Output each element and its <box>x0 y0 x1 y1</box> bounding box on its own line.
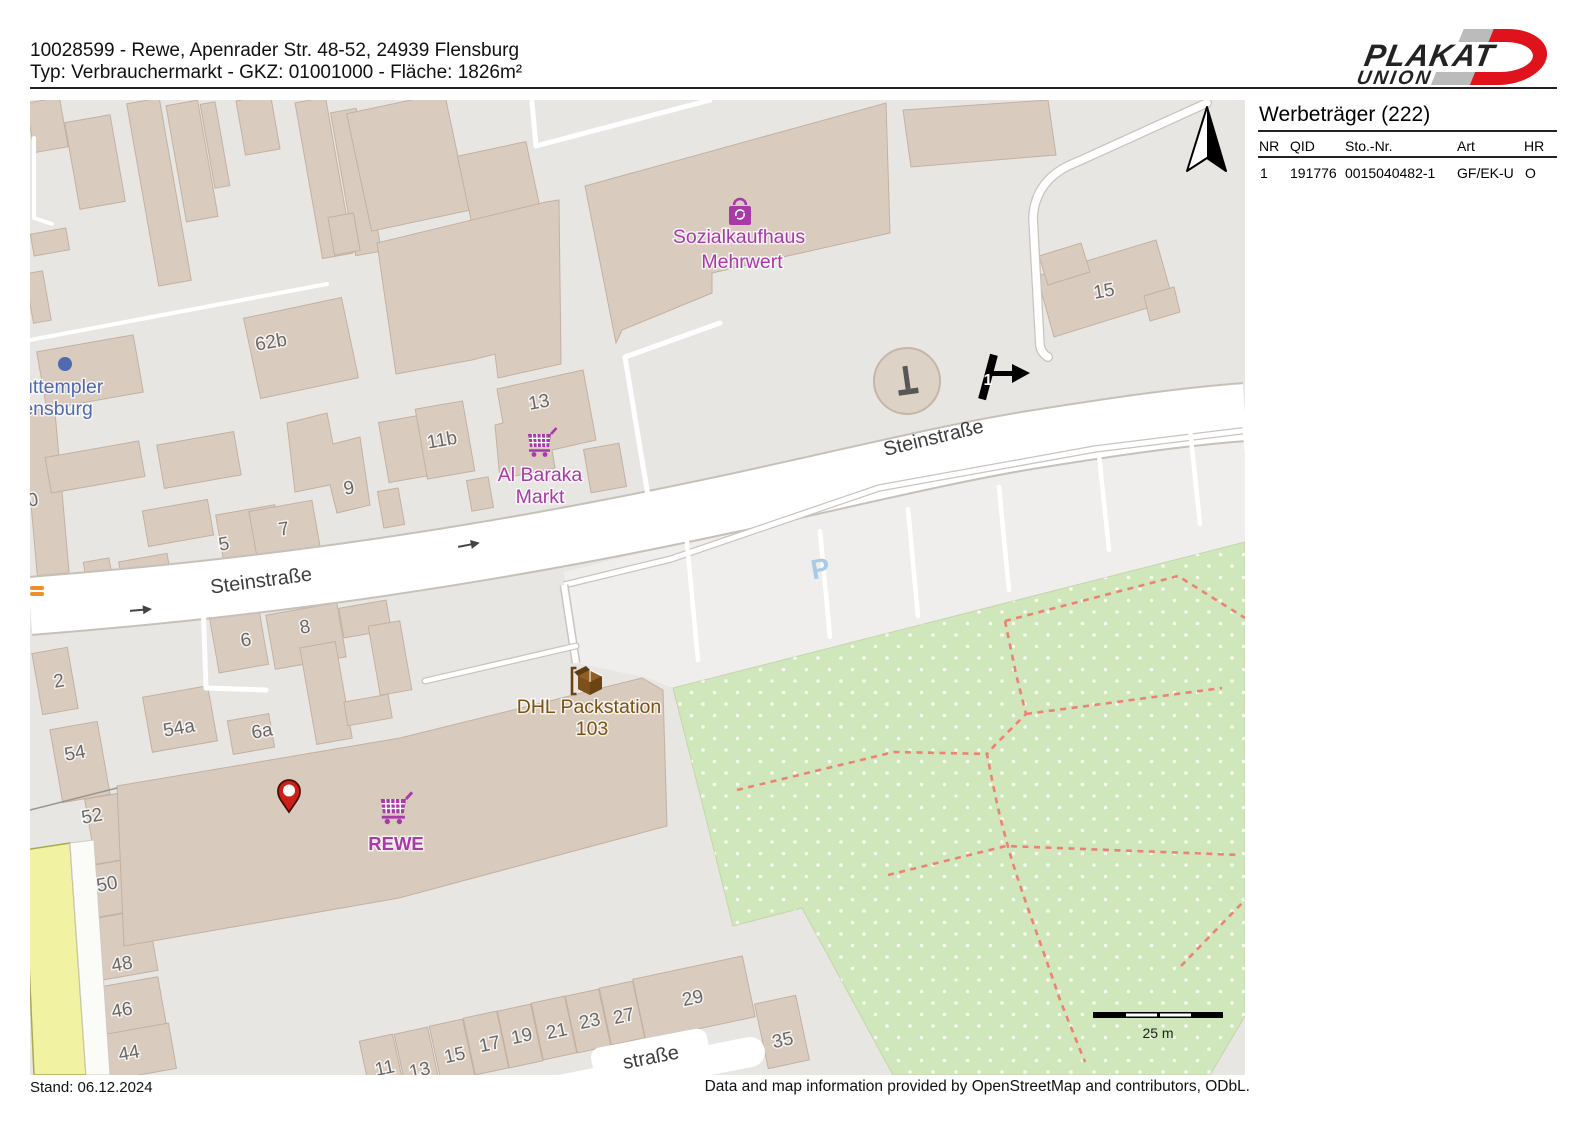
svg-text:DHL Packstation: DHL Packstation <box>517 696 662 718</box>
svg-text:Mehrwert: Mehrwert <box>701 251 783 273</box>
svg-text:35: 35 <box>770 1028 795 1053</box>
svg-text:1: 1 <box>984 372 993 389</box>
svg-text:Markt: Markt <box>516 486 565 508</box>
svg-text:50: 50 <box>95 872 119 896</box>
svg-text:Sozialkaufhaus: Sozialkaufhaus <box>673 226 806 248</box>
svg-text:25 m: 25 m <box>1142 1025 1173 1041</box>
svg-text:54: 54 <box>63 741 88 765</box>
svg-text:uttempler: uttempler <box>30 376 104 398</box>
svg-text:13: 13 <box>527 390 551 414</box>
svg-text:48: 48 <box>110 952 134 976</box>
svg-text:46: 46 <box>110 998 134 1022</box>
svg-text:103: 103 <box>576 718 609 740</box>
svg-text:19: 19 <box>509 1024 534 1049</box>
svg-text:UNION: UNION <box>1355 67 1434 86</box>
svg-text:6a: 6a <box>250 719 275 743</box>
svg-text:23: 23 <box>577 1009 602 1034</box>
svg-text:15: 15 <box>1092 279 1116 303</box>
svg-text:44: 44 <box>117 1041 142 1065</box>
svg-text:17: 17 <box>477 1032 502 1057</box>
svg-text:27: 27 <box>611 1004 636 1029</box>
svg-text:REWE: REWE <box>368 833 424 854</box>
svg-text:52: 52 <box>80 804 104 828</box>
svg-text:lensburg: lensburg <box>30 398 93 420</box>
svg-text:15: 15 <box>442 1043 467 1068</box>
svg-text:Al Baraka: Al Baraka <box>498 464 583 486</box>
svg-text:21: 21 <box>544 1019 569 1044</box>
svg-text:29: 29 <box>680 986 705 1011</box>
